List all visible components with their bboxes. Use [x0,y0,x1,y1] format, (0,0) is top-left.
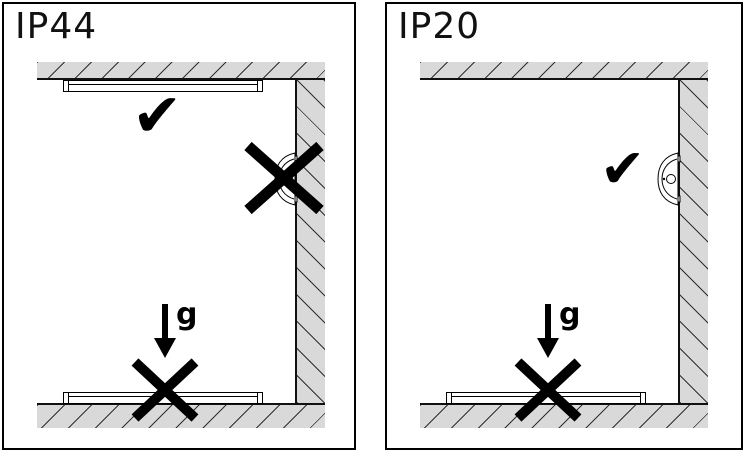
luminaire-detail [68,393,69,403]
cross-mark-icon [513,357,583,423]
mounting-diagram: IP44 ✔ g [0,0,745,452]
panel-ip20: IP20 ✔ g [385,2,743,450]
gravity-label: g [176,300,197,330]
cross-mark-icon [130,357,200,423]
ceiling-surface [420,62,708,80]
luminaire-detail [257,393,258,403]
gravity-label: g [559,300,580,330]
panel-ip44: IP44 ✔ g [2,2,356,450]
wall-surface [295,80,325,403]
luminaire-detail [257,81,258,91]
luminaire-detail [451,393,452,403]
wall-surface [678,80,708,403]
check-mark-icon: ✔ [600,142,645,196]
panel-title: IP44 [15,6,97,47]
luminaire-detail [68,81,69,91]
wall-luminaire [656,152,682,206]
ceiling-surface [37,62,325,80]
luminaire-detail [640,393,641,403]
luminaire-detail [667,175,676,184]
luminaire-detail [663,178,665,180]
panel-title: IP20 [398,6,480,47]
cross-mark-icon [242,140,326,216]
check-mark-icon: ✔ [132,86,182,146]
